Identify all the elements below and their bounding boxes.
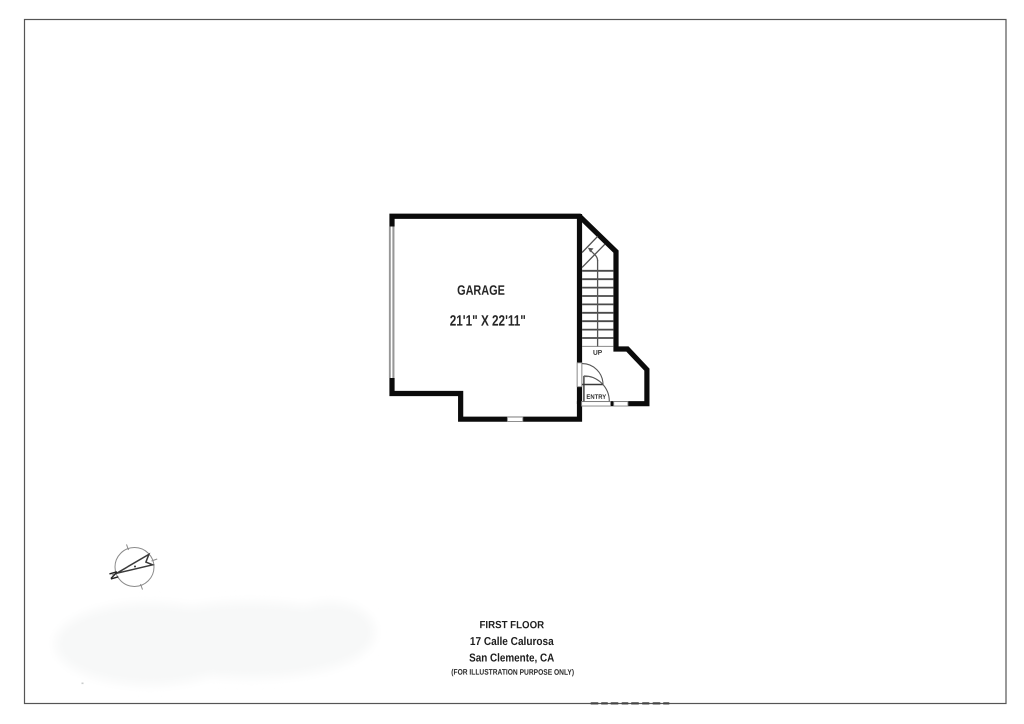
svg-text:17 Calle Calurosa: 17 Calle Calurosa	[470, 636, 554, 648]
svg-text:San Clemente, CA: San Clemente, CA	[469, 652, 554, 664]
svg-text:ENTRY: ENTRY	[586, 394, 606, 401]
svg-text:UP: UP	[593, 350, 603, 357]
svg-text:FIRST FLOOR: FIRST FLOOR	[479, 620, 544, 631]
svg-text:(FOR ILLUSTRATION PURPOSE ONLY: (FOR ILLUSTRATION PURPOSE ONLY)	[451, 668, 574, 677]
svg-text:21'1" X 22'11": 21'1" X 22'11"	[450, 313, 526, 330]
svg-text:GARAGE: GARAGE	[457, 283, 505, 298]
